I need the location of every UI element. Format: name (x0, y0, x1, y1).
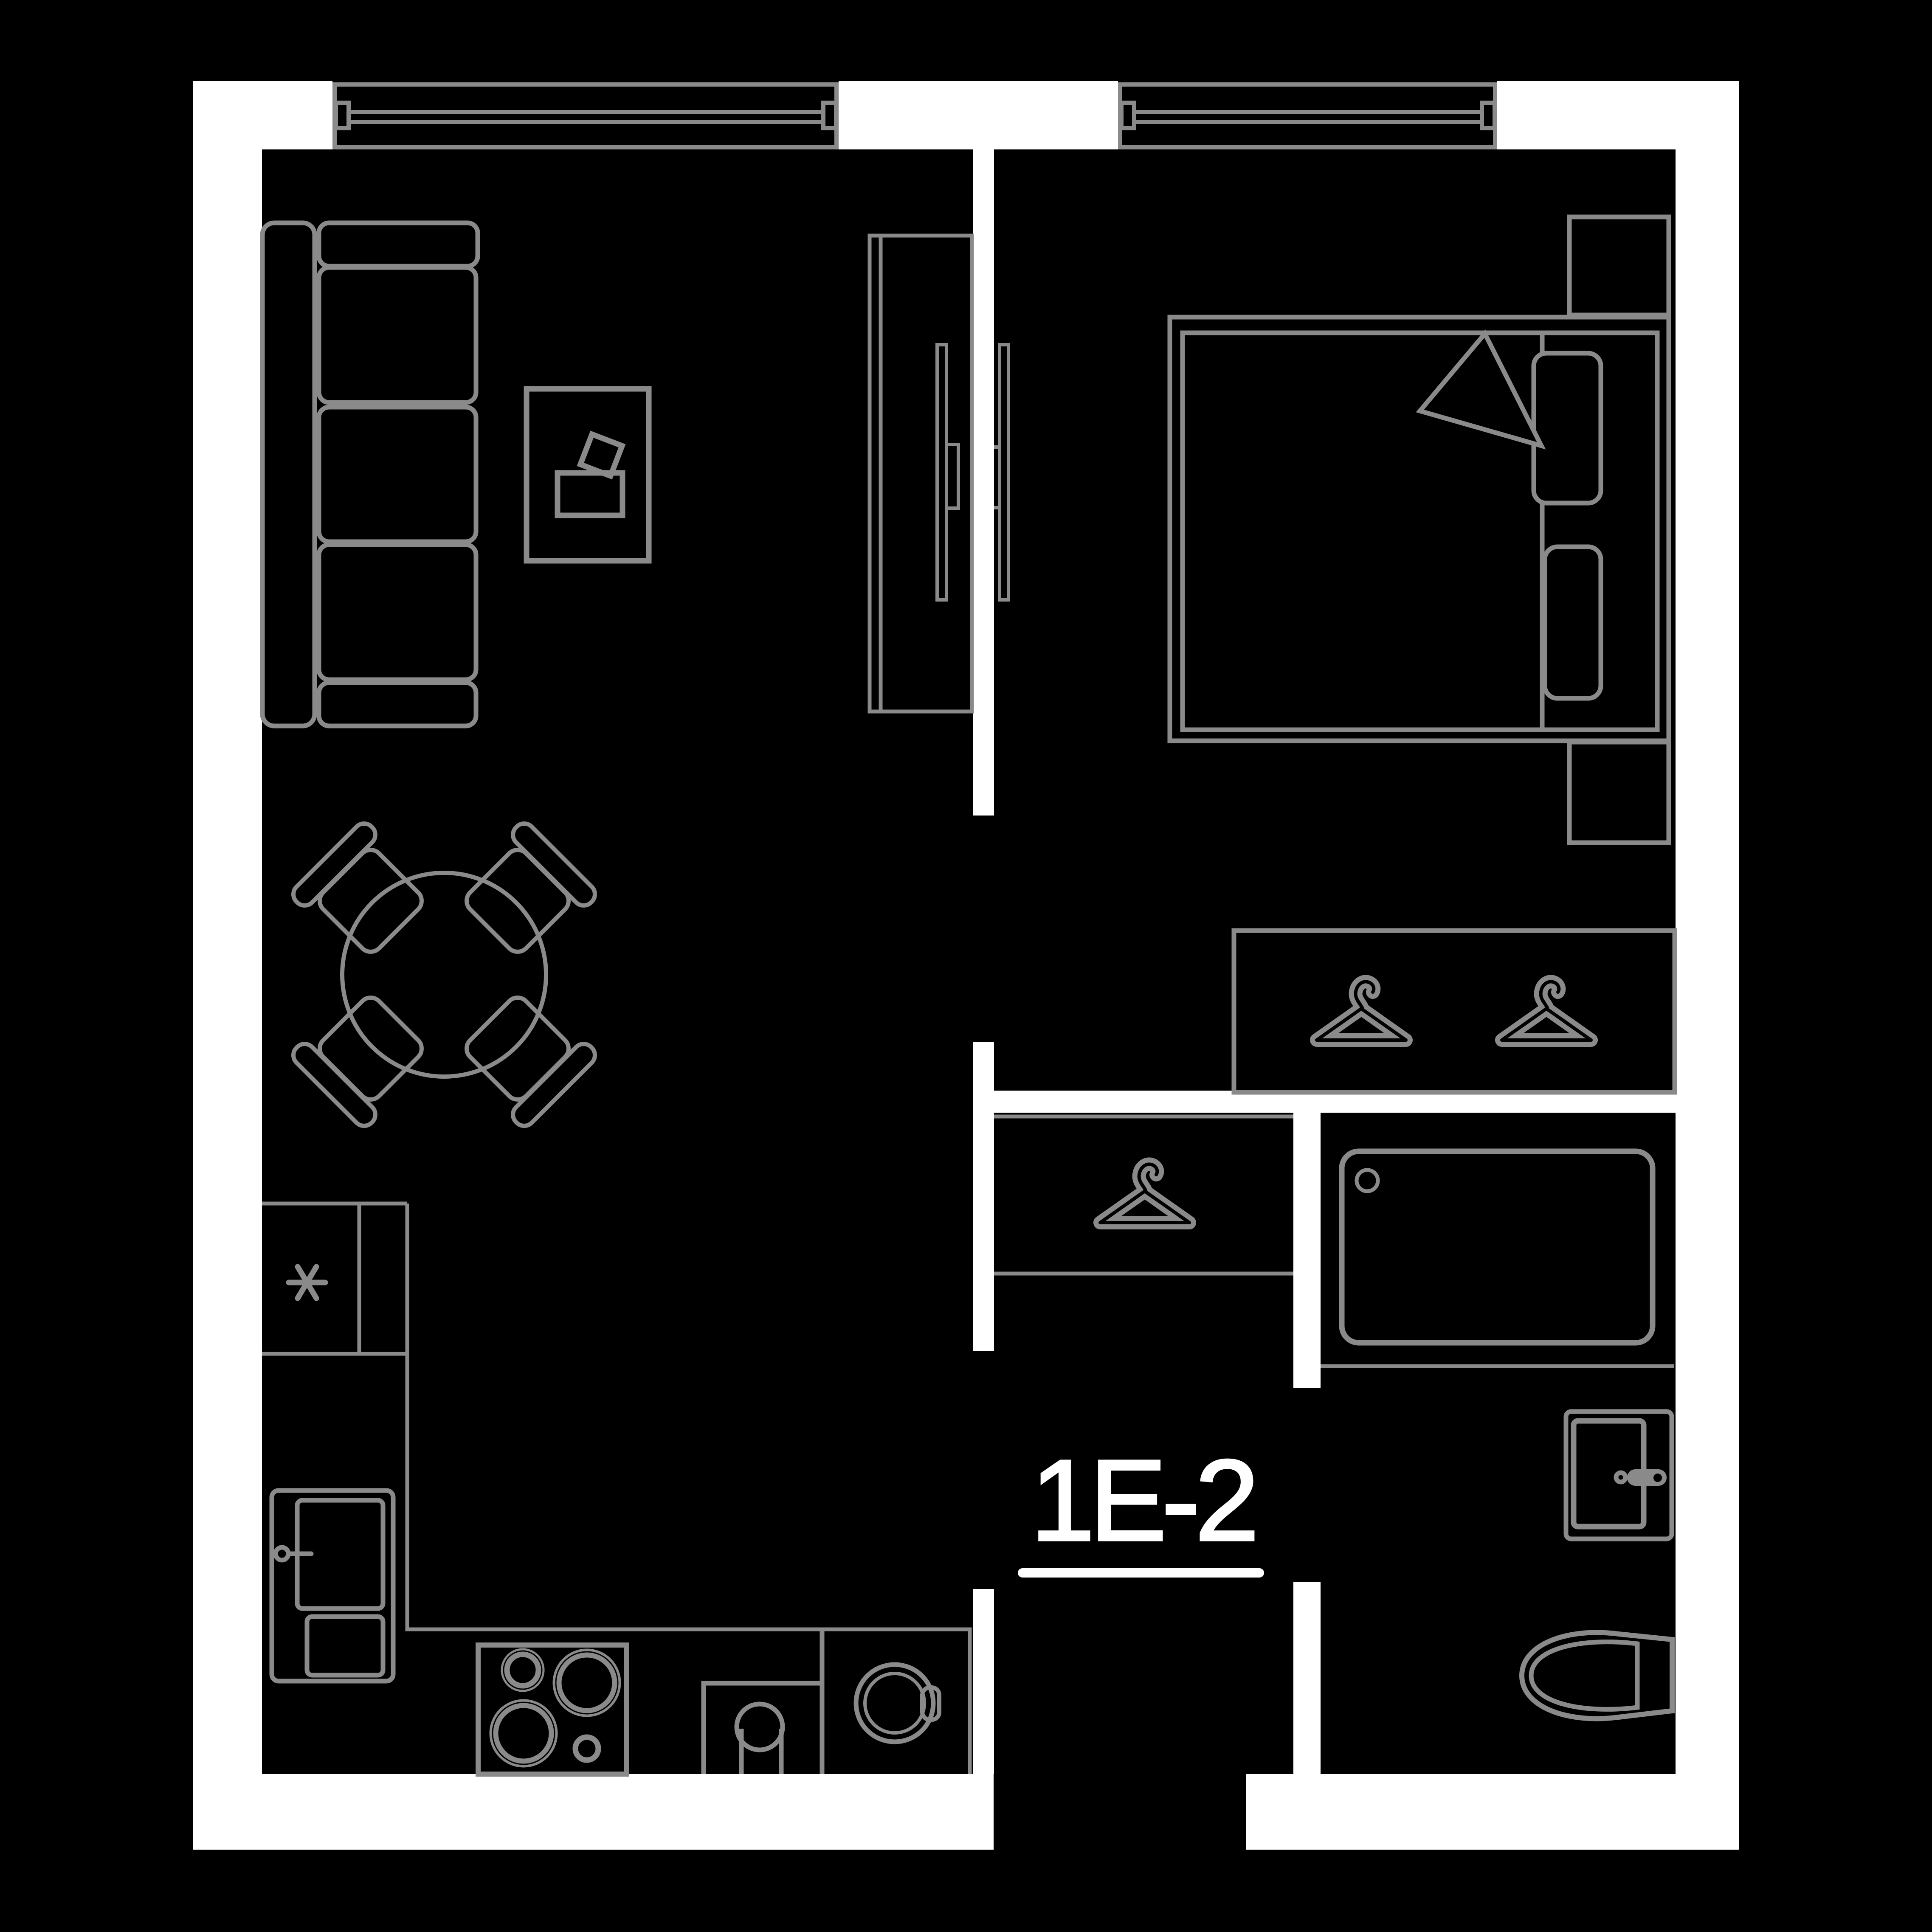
svg-text:1Е-2: 1Е-2 (1031, 1436, 1255, 1565)
